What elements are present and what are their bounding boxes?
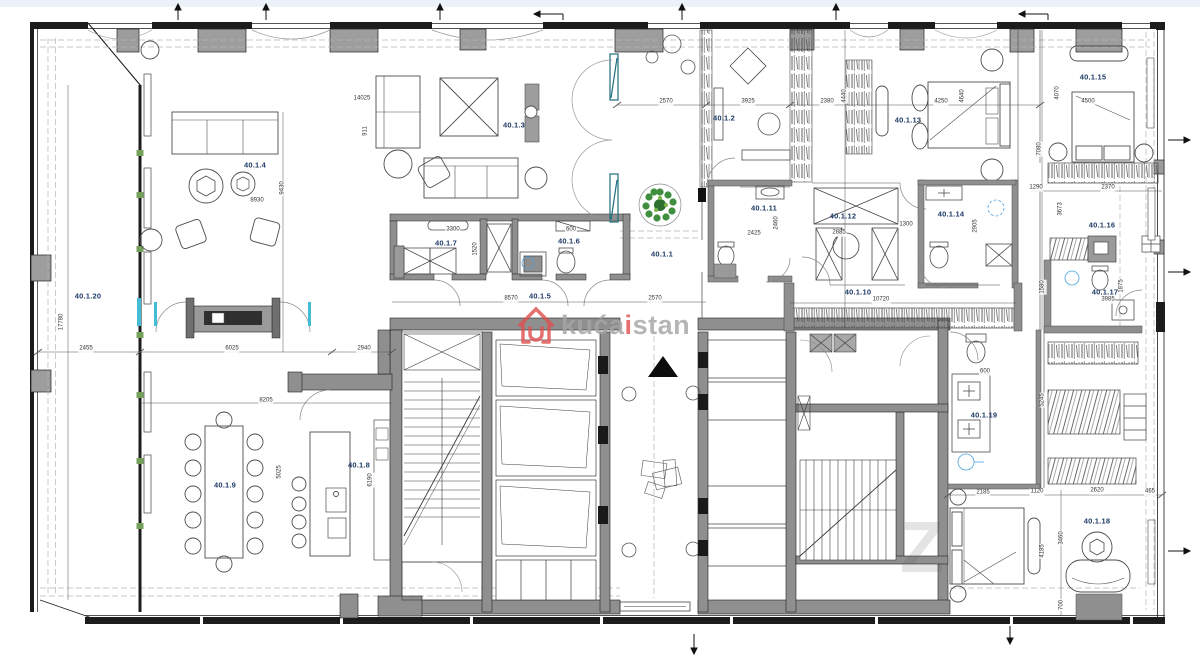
dressing-lower-right	[1044, 330, 1146, 488]
elevators-west	[496, 340, 608, 600]
kitchen-8	[292, 390, 390, 560]
plant-icon	[639, 184, 681, 226]
wc-room-fixtures	[434, 221, 610, 306]
bedroom-2	[700, 30, 790, 187]
stairs-east	[798, 334, 930, 560]
dressing-16	[1040, 163, 1160, 330]
north-triangle-icon	[648, 356, 678, 377]
lobby-furniture-icon	[641, 460, 682, 499]
floor-plan-canvas: 40.1.140.1.240.1.340.1.440.1.540.1.640.1…	[0, 0, 1200, 658]
bathroom-19	[948, 330, 1041, 489]
bathroom-11	[708, 180, 792, 282]
stairs-west	[402, 332, 482, 600]
living-3	[424, 78, 547, 198]
entry-hall	[572, 30, 706, 318]
fireplace	[154, 298, 311, 338]
core-lobby	[620, 336, 700, 611]
bathroom-14	[918, 180, 1018, 288]
corridor-10	[784, 257, 1022, 331]
elevators-east	[698, 340, 786, 566]
bedroom-18	[950, 489, 1155, 620]
laundry-room-fixtures	[394, 221, 511, 278]
bathroom-17	[1044, 260, 1142, 333]
facade-columns	[31, 29, 1164, 392]
dining-9	[185, 412, 263, 572]
floor-plan-drawing	[0, 0, 1200, 658]
window-wall	[137, 74, 152, 612]
direction-arrows	[175, 4, 1190, 654]
closet-12	[814, 188, 898, 280]
glass-door-icon	[137, 298, 141, 326]
